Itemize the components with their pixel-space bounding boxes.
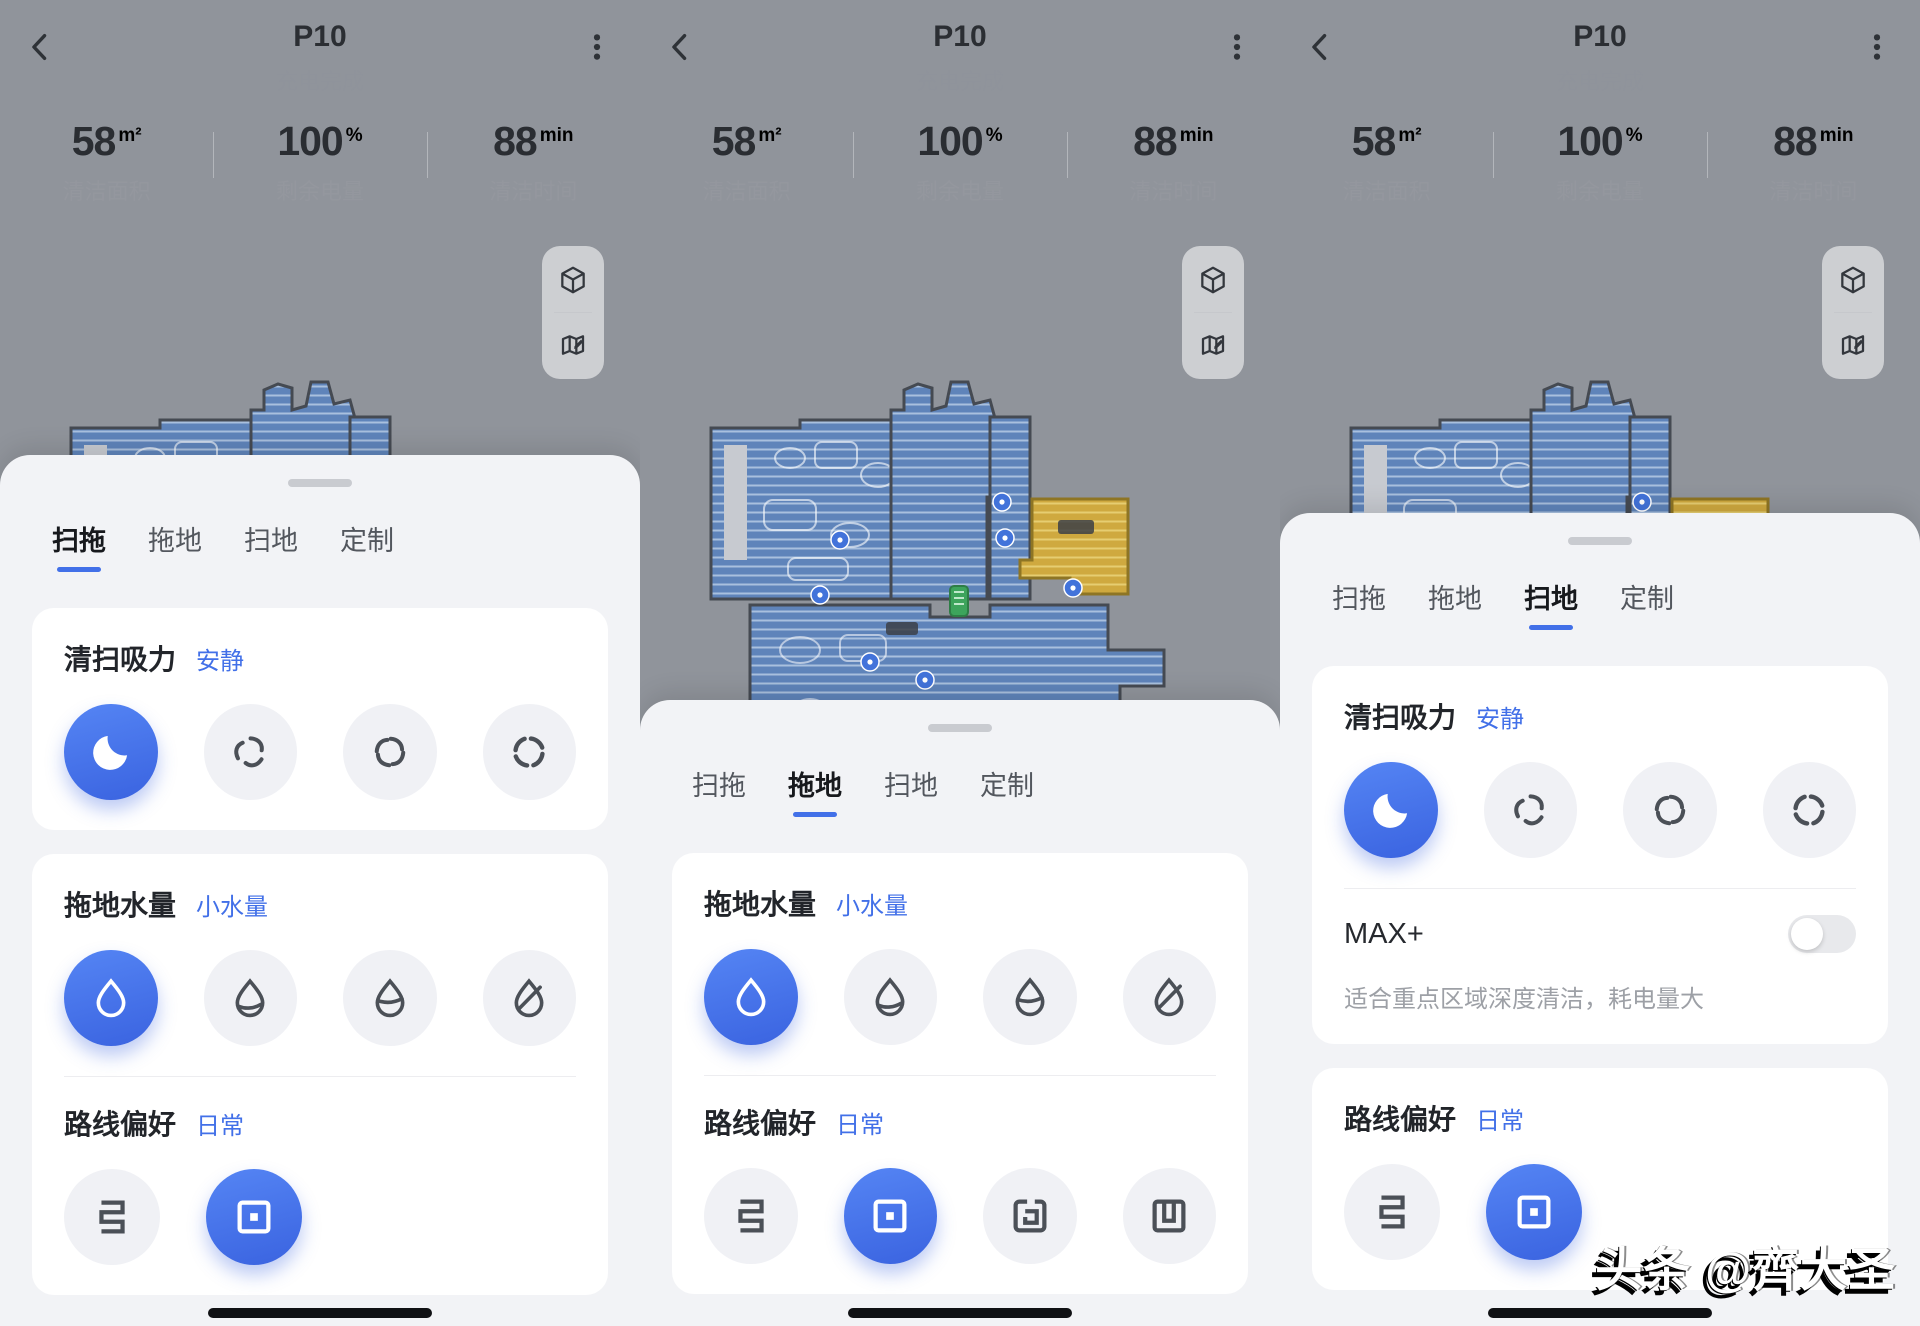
sheet-drag-handle[interactable] (288, 479, 352, 487)
tab-sweep-mop[interactable]: 扫拖 (692, 764, 746, 817)
drop-full-icon (728, 974, 774, 1020)
stat-area-unit: m² (1398, 125, 1421, 147)
stat-time-label: 清洁时间 (427, 174, 640, 206)
header-title-block: P10 充电完成 (1280, 20, 1920, 96)
screenshot-panel-sweep: P10 充电完成 58m² 清洁面积 100% 剩余电量 88min 清洁时间 (1280, 0, 1920, 1326)
device-title: P10 (1280, 20, 1920, 54)
header-title-block: P10 充电完成 (640, 20, 1280, 96)
stat-time-unit: min (1820, 125, 1854, 147)
drop-low-icon (227, 975, 273, 1021)
fan-3-icon (506, 729, 552, 775)
water-title: 拖地水量 (704, 883, 816, 923)
water-option-small[interactable] (64, 950, 158, 1046)
tab-custom[interactable]: 定制 (980, 764, 1034, 817)
mode-tabs: 扫拖拖地扫地定制 (52, 519, 640, 572)
device-title: P10 (0, 20, 640, 54)
water-value[interactable]: 小水量 (196, 887, 268, 922)
tab-mop[interactable]: 拖地 (788, 764, 842, 817)
route-value[interactable]: 日常 (1476, 1101, 1524, 1136)
controls-divider (1194, 312, 1232, 313)
drop-slash-icon (1146, 974, 1192, 1020)
bottom-sheet: 扫拖拖地扫地定制 拖地水量小水量 路线偏好日常 (640, 700, 1280, 1326)
route-option-intensive[interactable] (983, 1168, 1077, 1264)
fan-3-icon (1786, 787, 1832, 833)
route-option-fast[interactable] (1344, 1164, 1440, 1260)
tab-custom[interactable]: 定制 (1620, 577, 1674, 630)
cube-3d-icon (1197, 284, 1229, 299)
stat-area: 58m² 清洁面积 (1280, 118, 1493, 206)
suction-max-card: 清扫吸力安静 MAX+ 适合重点区域深度清洁，耗电量大 (1312, 666, 1888, 1044)
route-value[interactable]: 日常 (196, 1106, 244, 1141)
stat-battery-value: 100 (1557, 118, 1622, 164)
tab-label: 拖地 (1428, 577, 1482, 616)
route-option-daily[interactable] (206, 1169, 302, 1265)
route-zigzag-icon (89, 1194, 135, 1240)
route-title: 路线偏好 (1344, 1098, 1456, 1138)
sheet-drag-handle[interactable] (928, 724, 992, 732)
sheet-drag-handle[interactable] (1568, 537, 1632, 545)
route-zigzag-icon (728, 1193, 774, 1239)
water-option-large[interactable] (343, 950, 437, 1046)
tab-active-underline (1433, 625, 1477, 630)
controls-divider (554, 312, 592, 313)
kebab-menu-icon (1860, 52, 1894, 67)
kebab-menu-icon (580, 52, 614, 67)
screenshot-panel-sweep-mop: P10 充电完成 58m² 清洁面积 100% 剩余电量 88min 清洁时间 (0, 0, 640, 1326)
map-view-controls (542, 246, 604, 379)
fan-1-icon (227, 729, 273, 775)
home-indicator[interactable] (208, 1308, 432, 1318)
stat-battery-label: 剩余电量 (1493, 174, 1706, 206)
suction-option-strong[interactable] (1623, 762, 1717, 858)
tab-mop[interactable]: 拖地 (148, 519, 202, 572)
stat-area-value: 58 (1352, 118, 1396, 164)
watermark: 头条 @齊大圣 (1595, 1231, 1896, 1300)
stat-area-unit: m² (758, 125, 781, 147)
suction-option-turbo[interactable] (1763, 762, 1857, 858)
tab-sweep-mop[interactable]: 扫拖 (1332, 577, 1386, 630)
suction-title: 清扫吸力 (64, 638, 176, 678)
route-option-daily[interactable] (1486, 1164, 1582, 1260)
tab-label: 扫拖 (52, 519, 106, 558)
tab-sweep[interactable]: 扫地 (884, 764, 938, 817)
stat-battery-label: 剩余电量 (213, 174, 426, 206)
card-divider (64, 1076, 576, 1077)
water-options (704, 949, 1216, 1045)
stat-area-label: 清洁面积 (640, 174, 853, 206)
stat-battery: 100% 剩余电量 (1493, 118, 1706, 206)
stat-time: 88min 清洁时间 (1067, 118, 1280, 206)
map-edit-icon (557, 349, 589, 364)
max-plus-label: MAX+ (1344, 918, 1424, 951)
header-title-block: P10 充电完成 (0, 20, 640, 96)
stat-battery-unit: % (346, 125, 363, 147)
stat-battery-unit: % (1626, 125, 1643, 147)
stat-time-label: 清洁时间 (1067, 174, 1280, 206)
water-options (64, 950, 576, 1046)
water-option-large[interactable] (983, 949, 1077, 1045)
max-plus-description: 适合重点区域深度清洁，耗电量大 (1344, 979, 1856, 1014)
max-plus-toggle[interactable] (1788, 915, 1856, 953)
drop-slash-icon (506, 975, 552, 1021)
tab-active-underline (793, 812, 837, 817)
route-comb-icon (1146, 1193, 1192, 1239)
suction-card: 清扫吸力安静 (32, 608, 608, 830)
fan-1-icon (1507, 787, 1553, 833)
suction-title: 清扫吸力 (1344, 696, 1456, 736)
stat-time-value: 88 (1133, 118, 1177, 164)
controls-divider (1834, 312, 1872, 313)
suction-option-standard[interactable] (1484, 762, 1578, 858)
max-plus-row: MAX+ (1344, 915, 1856, 953)
stat-time-unit: min (1180, 125, 1214, 147)
tab-label: 定制 (1620, 577, 1674, 616)
tab-sweep-mop[interactable]: 扫拖 (52, 519, 106, 572)
route-options (64, 1169, 576, 1265)
stat-time-unit: min (540, 125, 574, 147)
view-3d-button[interactable] (557, 264, 589, 296)
tab-label: 定制 (340, 519, 394, 558)
device-status: 充电完成 (0, 64, 640, 96)
kebab-menu-icon (1220, 52, 1254, 67)
more-menu-button[interactable] (580, 30, 614, 64)
stat-battery-unit: % (986, 125, 1003, 147)
route-square-icon (867, 1193, 913, 1239)
tab-label: 扫拖 (1332, 577, 1386, 616)
map-edit-icon (1837, 349, 1869, 364)
mode-tabs: 扫拖拖地扫地定制 (1332, 577, 1920, 630)
bottom-sheet: 扫拖拖地扫地定制 清扫吸力安静 拖地水量小水量 路线偏好日常 (0, 455, 640, 1326)
tab-mop[interactable]: 拖地 (1428, 577, 1482, 630)
route-title: 路线偏好 (64, 1103, 176, 1143)
tab-active-underline (345, 567, 389, 572)
water-option-medium[interactable] (204, 950, 298, 1046)
route-value[interactable]: 日常 (836, 1105, 884, 1140)
stats-row: 58m² 清洁面积 100% 剩余电量 88min 清洁时间 (0, 118, 640, 206)
tab-active-underline (1529, 625, 1573, 630)
tab-label: 定制 (980, 764, 1034, 803)
tab-active-underline (57, 567, 101, 572)
water-option-custom[interactable] (1123, 949, 1217, 1045)
tab-sweep[interactable]: 扫地 (1524, 577, 1578, 630)
stitched-screenshots: P10 充电完成 58m² 清洁面积 100% 剩余电量 88min 清洁时间 (0, 0, 1920, 1326)
device-status: 充电完成 (1280, 64, 1920, 96)
home-indicator[interactable] (1488, 1308, 1712, 1318)
map-edit-icon (1197, 349, 1229, 364)
home-indicator[interactable] (848, 1308, 1072, 1318)
stat-time-value: 88 (493, 118, 537, 164)
map-view-controls (1822, 246, 1884, 379)
suction-options (1344, 762, 1856, 858)
suction-value[interactable]: 安静 (196, 641, 244, 676)
edit-map-button[interactable] (1837, 329, 1869, 361)
suction-options (64, 704, 576, 800)
tab-label: 扫地 (1524, 577, 1578, 616)
cube-3d-icon (1837, 284, 1869, 299)
suction-option-standard[interactable] (204, 704, 298, 800)
route-square-icon (1511, 1189, 1557, 1235)
water-route-card: 拖地水量小水量 路线偏好日常 (672, 853, 1248, 1294)
suction-option-strong[interactable] (343, 704, 437, 800)
bottom-sheet: 扫拖拖地扫地定制 清扫吸力安静 MAX+ 适合重点区域深度清洁，耗电量大 路线偏… (1280, 513, 1920, 1326)
tab-label: 拖地 (148, 519, 202, 558)
mode-tabs: 扫拖拖地扫地定制 (692, 764, 1280, 817)
route-zigzag-icon (1369, 1189, 1415, 1235)
stat-battery: 100% 剩余电量 (853, 118, 1066, 206)
tab-label: 扫地 (884, 764, 938, 803)
stat-area-label: 清洁面积 (0, 174, 213, 206)
more-menu-button[interactable] (1860, 30, 1894, 64)
stats-row: 58m² 清洁面积 100% 剩余电量 88min 清洁时间 (640, 118, 1280, 206)
stat-battery-label: 剩余电量 (853, 174, 1066, 206)
suction-option-quiet[interactable] (1344, 762, 1438, 858)
route-title: 路线偏好 (704, 1102, 816, 1142)
suction-value[interactable]: 安静 (1476, 699, 1524, 734)
tab-label: 扫地 (244, 519, 298, 558)
view-3d-button[interactable] (1837, 264, 1869, 296)
moon-icon (88, 729, 134, 775)
water-value[interactable]: 小水量 (836, 886, 908, 921)
screenshot-panel-mop: P10 充电完成 58m² 清洁面积 100% 剩余电量 88min 清洁时间 (640, 0, 1280, 1326)
stat-time: 88min 清洁时间 (1707, 118, 1920, 206)
tab-active-underline (1625, 625, 1669, 630)
tab-active-underline (889, 812, 933, 817)
tab-active-underline (985, 812, 1029, 817)
edit-map-button[interactable] (1197, 329, 1229, 361)
route-option-fast[interactable] (64, 1169, 160, 1265)
card-divider (704, 1075, 1216, 1076)
tab-label: 拖地 (788, 764, 842, 803)
stat-area-unit: m² (118, 125, 141, 147)
fan-2-icon (1647, 787, 1693, 833)
drop-full-icon (88, 975, 134, 1021)
cube-3d-icon (557, 284, 589, 299)
map-view-controls (1182, 246, 1244, 379)
tab-active-underline (1337, 625, 1381, 630)
toggle-knob (1791, 918, 1823, 950)
water-title: 拖地水量 (64, 884, 176, 924)
water-option-medium[interactable] (844, 949, 938, 1045)
route-option-fast[interactable] (704, 1168, 798, 1264)
device-status: 充电完成 (640, 64, 1280, 96)
route-spiral-icon (1007, 1193, 1053, 1239)
tab-active-underline (697, 812, 741, 817)
stats-row: 58m² 清洁面积 100% 剩余电量 88min 清洁时间 (1280, 118, 1920, 206)
stat-time-value: 88 (1773, 118, 1817, 164)
card-divider (1344, 888, 1856, 889)
fan-2-icon (367, 729, 413, 775)
tab-active-underline (153, 567, 197, 572)
stat-area: 58m² 清洁面积 (640, 118, 853, 206)
suction-option-quiet[interactable] (64, 704, 158, 800)
water-option-small[interactable] (704, 949, 798, 1045)
stat-area-label: 清洁面积 (1280, 174, 1493, 206)
stat-battery-value: 100 (917, 118, 982, 164)
stat-battery-value: 100 (277, 118, 342, 164)
stat-area: 58m² 清洁面积 (0, 118, 213, 206)
tab-sweep[interactable]: 扫地 (244, 519, 298, 572)
more-menu-button[interactable] (1220, 30, 1254, 64)
view-3d-button[interactable] (1197, 264, 1229, 296)
stat-time-label: 清洁时间 (1707, 174, 1920, 206)
water-route-card: 拖地水量小水量 路线偏好日常 (32, 854, 608, 1295)
tab-active-underline (249, 567, 293, 572)
stat-area-value: 58 (72, 118, 116, 164)
drop-mid-icon (367, 975, 413, 1021)
route-option-daily[interactable] (844, 1168, 938, 1264)
edit-map-button[interactable] (557, 329, 589, 361)
water-option-custom[interactable] (483, 950, 577, 1046)
tab-label: 扫拖 (692, 764, 746, 803)
device-title: P10 (640, 20, 1280, 54)
route-option-grid[interactable] (1123, 1168, 1217, 1264)
suction-option-turbo[interactable] (483, 704, 577, 800)
moon-icon (1368, 787, 1414, 833)
tab-custom[interactable]: 定制 (340, 519, 394, 572)
route-square-icon (231, 1194, 277, 1240)
stat-time: 88min 清洁时间 (427, 118, 640, 206)
route-options (704, 1168, 1216, 1264)
drop-mid-icon (1007, 974, 1053, 1020)
stat-area-value: 58 (712, 118, 756, 164)
drop-low-icon (867, 974, 913, 1020)
stat-battery: 100% 剩余电量 (213, 118, 426, 206)
